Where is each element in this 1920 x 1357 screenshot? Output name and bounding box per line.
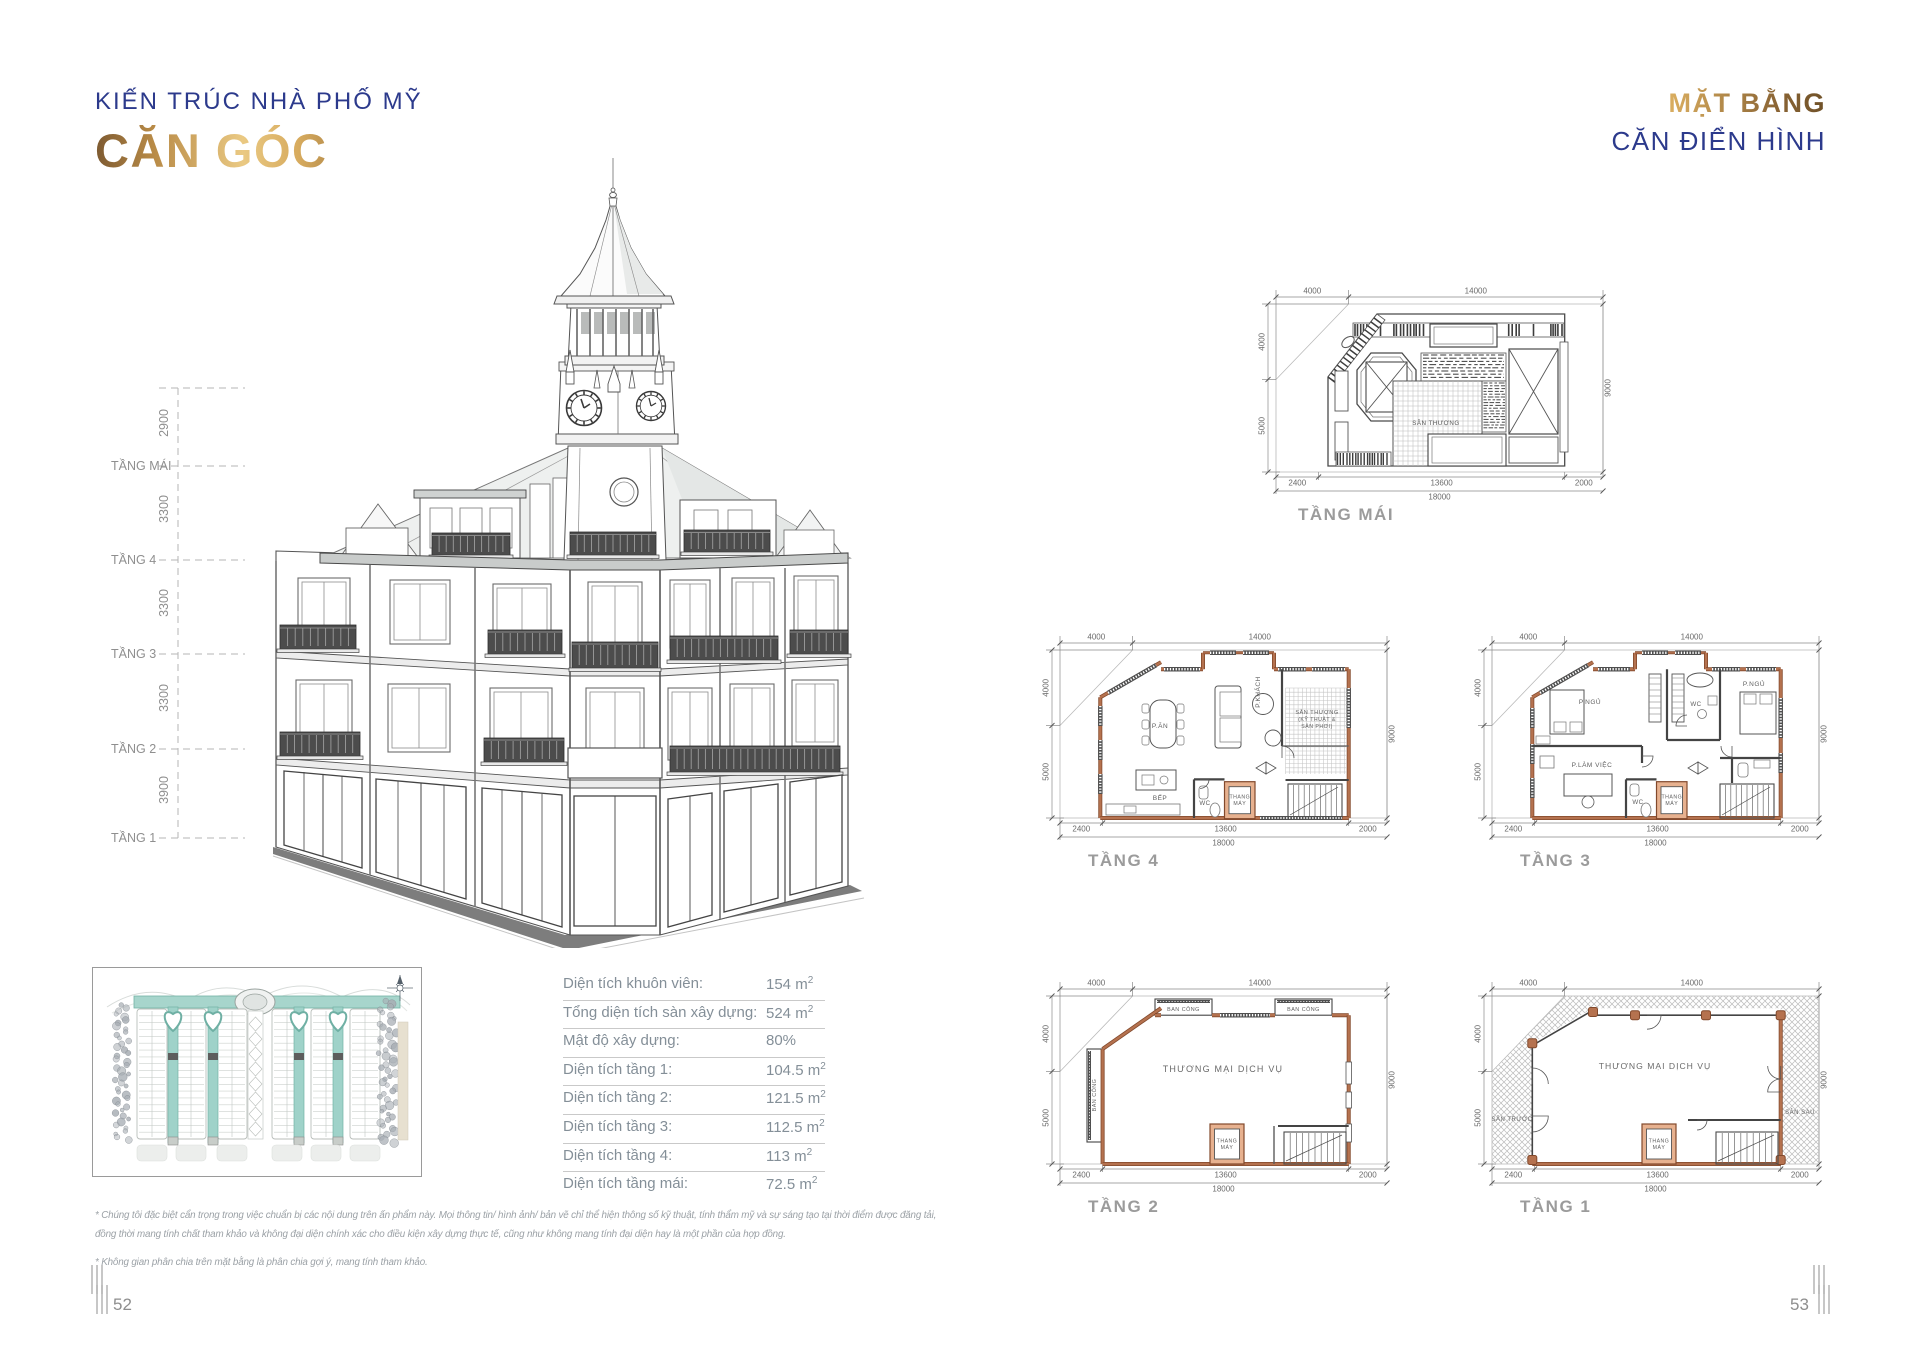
svg-text:4000: 4000 [1519,979,1537,988]
svg-text:2400: 2400 [1288,479,1306,488]
svg-text:3300: 3300 [157,495,171,523]
svg-text:13600: 13600 [1214,1171,1237,1180]
svg-text:5000: 5000 [1258,416,1267,434]
svg-text:4000: 4000 [1474,1024,1483,1042]
svg-text:THANG: THANG [1649,1139,1670,1145]
svg-text:18000: 18000 [1644,839,1667,848]
svg-text:MÁY: MÁY [1221,1144,1234,1151]
svg-text:14000: 14000 [1681,979,1704,988]
svg-text:P.KHÁCH: P.KHÁCH [1253,676,1262,708]
svg-text:4000: 4000 [1258,332,1267,350]
svg-text:5000: 5000 [1042,762,1051,780]
svg-text:SÂN THƯỢNG: SÂN THƯỢNG [1412,420,1459,427]
svg-text:18000: 18000 [1428,493,1451,502]
svg-text:P.NGỦ: P.NGỦ [1579,697,1601,706]
svg-text:9000: 9000 [1820,1071,1829,1089]
svg-text:2000: 2000 [1791,825,1809,834]
svg-text:TẦNG MÁI: TẦNG MÁI [111,458,171,473]
svg-text:9000: 9000 [1820,725,1829,743]
svg-text:THANG: THANG [1229,795,1250,801]
svg-text:13600: 13600 [1214,825,1237,834]
svg-text:4000: 4000 [1303,287,1321,296]
svg-text:13600: 13600 [1430,479,1453,488]
svg-text:3300: 3300 [157,684,171,712]
svg-text:TẦNG 2: TẦNG 2 [111,741,156,756]
svg-text:4000: 4000 [1519,633,1537,642]
svg-text:WC: WC [1632,799,1643,806]
svg-text:3300: 3300 [157,589,171,617]
svg-text:THANG: THANG [1661,795,1682,801]
svg-text:18000: 18000 [1212,1185,1235,1194]
svg-text:THƯƠNG MẠI DỊCH VỤ: THƯƠNG MẠI DỊCH VỤ [1163,1064,1284,1074]
svg-text:MÁY: MÁY [1233,800,1246,807]
svg-text:SÂN SAU: SÂN SAU [1785,1109,1815,1116]
svg-text:TẦNG 3: TẦNG 3 [1520,851,1591,870]
svg-text:THANG: THANG [1217,1139,1238,1145]
svg-text:WC: WC [1690,701,1701,708]
svg-text:BAN CÔNG: BAN CÔNG [1167,1006,1200,1013]
svg-text:2400: 2400 [1072,825,1090,834]
svg-text:WC: WC [1199,800,1210,807]
svg-text:TẦNG 1: TẦNG 1 [1520,1197,1591,1216]
svg-text:(KỸ THUẬT &: (KỸ THUẬT & [1298,716,1336,723]
svg-text:SÂN TRƯỚC: SÂN TRƯỚC [1492,1116,1533,1123]
svg-text:4000: 4000 [1042,678,1051,696]
svg-text:2400: 2400 [1072,1171,1090,1180]
svg-text:2000: 2000 [1791,1171,1809,1180]
svg-text:5000: 5000 [1042,1108,1051,1126]
svg-text:14000: 14000 [1249,979,1272,988]
svg-text:MÁY: MÁY [1653,1144,1666,1151]
svg-text:13600: 13600 [1646,825,1669,834]
svg-text:2000: 2000 [1359,825,1377,834]
svg-text:2400: 2400 [1504,1171,1522,1180]
svg-text:9000: 9000 [1388,1071,1397,1089]
svg-text:TẦNG 4: TẦNG 4 [111,552,156,567]
svg-text:13600: 13600 [1646,1171,1669,1180]
svg-text:BAN CÔNG: BAN CÔNG [1287,1006,1320,1013]
svg-text:TẦNG 1: TẦNG 1 [111,830,156,845]
svg-text:SÂN THƯỢNG: SÂN THƯỢNG [1295,709,1338,716]
svg-text:TẦNG 3: TẦNG 3 [111,646,156,661]
svg-text:4000: 4000 [1087,979,1105,988]
svg-text:2400: 2400 [1504,825,1522,834]
svg-text:4000: 4000 [1042,1024,1051,1042]
svg-text:14000: 14000 [1249,633,1272,642]
svg-text:18000: 18000 [1212,839,1235,848]
svg-text:14000: 14000 [1465,287,1488,296]
svg-text:SÂN PHƠI): SÂN PHƠI) [1301,723,1332,730]
svg-text:5000: 5000 [1474,1108,1483,1126]
svg-text:14000: 14000 [1681,633,1704,642]
svg-text:4000: 4000 [1474,678,1483,696]
svg-text:5000: 5000 [1474,762,1483,780]
svg-text:4000: 4000 [1087,633,1105,642]
svg-text:2900: 2900 [157,409,171,437]
svg-text:P.LÀM VIỆC: P.LÀM VIỆC [1572,760,1613,769]
svg-text:9000: 9000 [1604,379,1613,397]
svg-text:P.ĂN: P.ĂN [1152,721,1168,730]
svg-text:3900: 3900 [157,776,171,804]
svg-text:2000: 2000 [1575,479,1593,488]
svg-text:TẦNG MÁI: TẦNG MÁI [1298,505,1394,524]
svg-text:2000: 2000 [1359,1171,1377,1180]
svg-text:BẾP: BẾP [1153,792,1168,802]
svg-text:9000: 9000 [1388,725,1397,743]
svg-text:MÁY: MÁY [1665,800,1678,807]
svg-text:TẦNG 4: TẦNG 4 [1088,851,1159,870]
svg-text:THƯƠNG MẠI DỊCH VỤ: THƯƠNG MẠI DỊCH VỤ [1599,1061,1711,1071]
svg-text:P.NGỦ: P.NGỦ [1743,679,1765,688]
svg-text:18000: 18000 [1644,1185,1667,1194]
svg-text:BAN CÔNG: BAN CÔNG [1091,1079,1098,1112]
